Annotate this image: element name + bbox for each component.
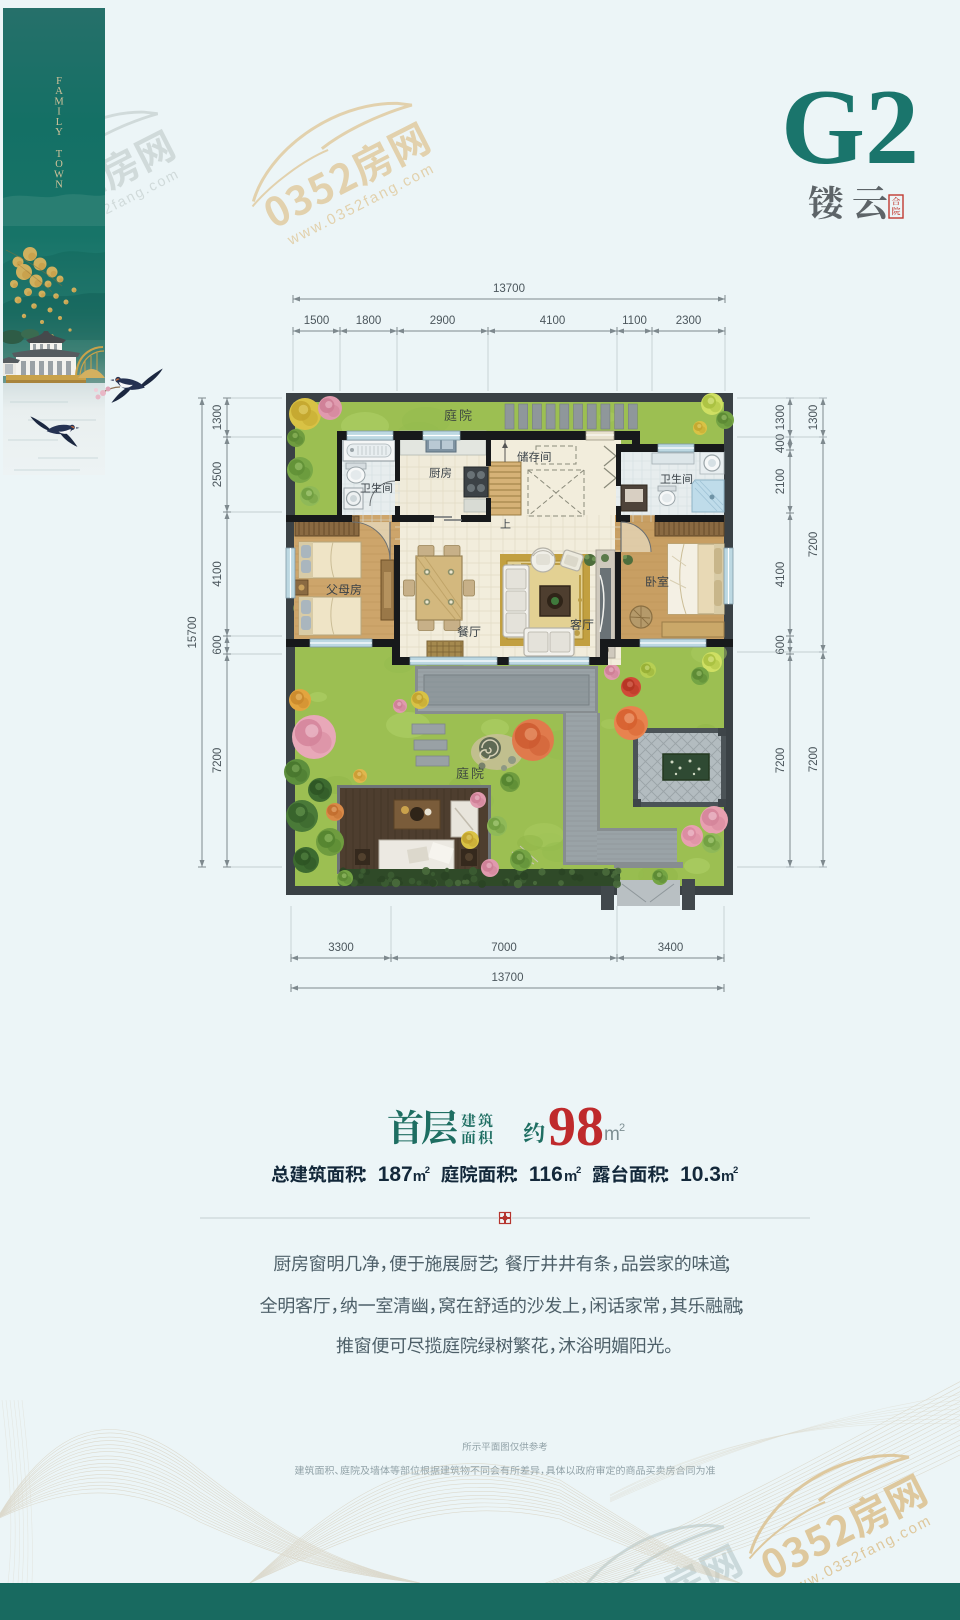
svg-text:2900: 2900 xyxy=(430,315,456,327)
svg-text:4100: 4100 xyxy=(540,315,566,327)
svg-text:1800: 1800 xyxy=(356,315,382,327)
svg-text:2500: 2500 xyxy=(212,462,224,488)
svg-text:3400: 3400 xyxy=(658,942,684,954)
svg-text:1100: 1100 xyxy=(622,315,647,327)
svg-text:1300: 1300 xyxy=(775,405,787,431)
svg-text:2: 2 xyxy=(733,1165,738,1176)
svg-text:7200: 7200 xyxy=(212,748,224,774)
svg-text:187: 187 xyxy=(378,1163,413,1186)
svg-text:600: 600 xyxy=(212,635,224,654)
svg-text:98: 98 xyxy=(548,1096,604,1158)
svg-text:N: N xyxy=(55,180,63,191)
svg-text:G2: G2 xyxy=(781,68,919,187)
svg-text:116: 116 xyxy=(529,1163,563,1186)
svg-text:2: 2 xyxy=(576,1165,581,1176)
svg-text:13700: 13700 xyxy=(493,283,525,295)
svg-text:7200: 7200 xyxy=(808,747,820,773)
svg-text:2300: 2300 xyxy=(676,315,702,327)
svg-text:7000: 7000 xyxy=(491,942,517,954)
svg-text:10.3: 10.3 xyxy=(680,1163,721,1186)
svg-text:2100: 2100 xyxy=(775,469,787,495)
svg-text:4100: 4100 xyxy=(212,561,224,587)
svg-text:4100: 4100 xyxy=(775,562,787,588)
svg-text:1300: 1300 xyxy=(808,405,820,431)
svg-text:7200: 7200 xyxy=(808,532,820,558)
svg-text:2: 2 xyxy=(425,1165,430,1176)
svg-text:Y: Y xyxy=(55,127,63,138)
svg-text:2: 2 xyxy=(619,1122,625,1134)
svg-text:13700: 13700 xyxy=(492,972,524,984)
svg-text:m: m xyxy=(604,1124,620,1145)
svg-text:15700: 15700 xyxy=(187,617,199,649)
svg-text:1500: 1500 xyxy=(304,315,330,327)
svg-text:1300: 1300 xyxy=(212,405,224,431)
svg-text:7200: 7200 xyxy=(775,748,787,774)
svg-text:3300: 3300 xyxy=(328,942,354,954)
